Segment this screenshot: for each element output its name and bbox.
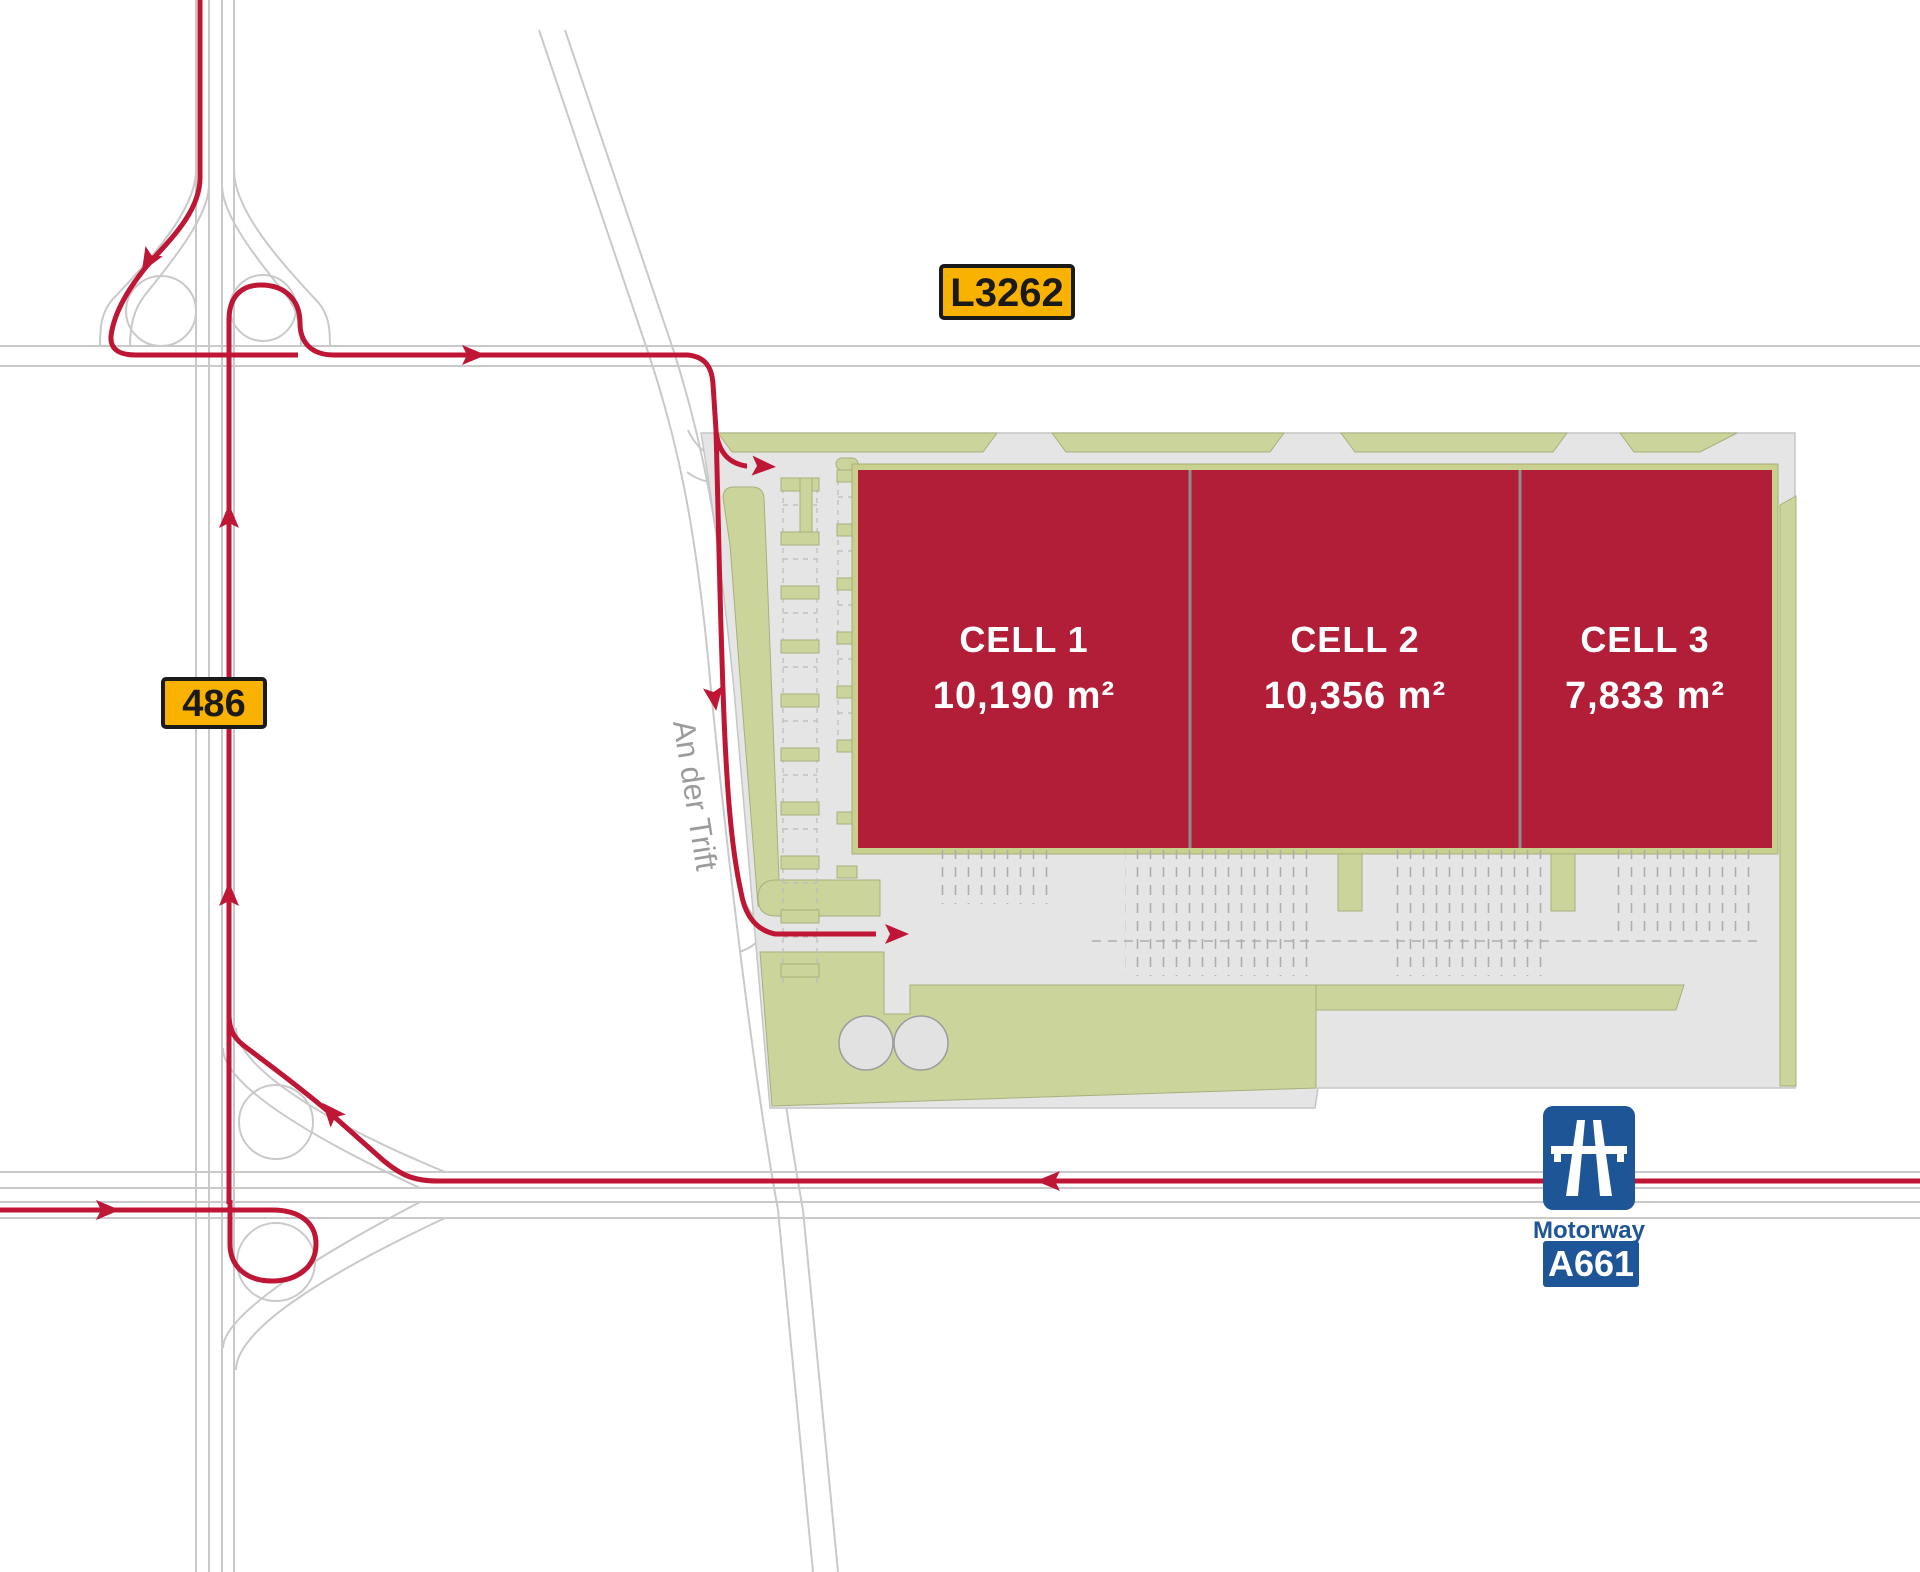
green-band-2 bbox=[1052, 433, 1284, 452]
green-right-strip bbox=[1780, 496, 1796, 1086]
interchange-south bbox=[223, 1028, 445, 1370]
cell-3-area: 7,833 m² bbox=[1565, 675, 1725, 717]
motorway-type-label: Motorway bbox=[1533, 1217, 1646, 1244]
badge-l3262-text: L3262 bbox=[950, 271, 1063, 315]
cell-2-name: CELL 2 bbox=[1290, 619, 1419, 660]
green-tab-2 bbox=[1551, 847, 1575, 911]
badge-a661-text: A661 bbox=[1548, 1243, 1634, 1284]
route-a661-east-loop bbox=[0, 1200, 316, 1281]
motorway-sign: Motorway A661 bbox=[1533, 1106, 1646, 1287]
cell-3-name: CELL 3 bbox=[1580, 619, 1709, 660]
green-band-3 bbox=[1341, 433, 1567, 452]
badge-486-text: 486 bbox=[182, 683, 245, 725]
badge-486: 486 bbox=[163, 679, 265, 727]
interchange-north bbox=[100, 170, 330, 346]
badge-l3262: L3262 bbox=[941, 266, 1073, 318]
route-486-south-exit bbox=[111, 0, 298, 355]
green-band-1 bbox=[718, 433, 997, 452]
site-access-map: CELL 1 10,190 m² CELL 2 10,356 m² CELL 3… bbox=[0, 0, 1920, 1572]
green-tab-1 bbox=[1338, 847, 1362, 911]
cell-1-name: CELL 1 bbox=[959, 619, 1088, 660]
tank-circle-1 bbox=[839, 1016, 893, 1070]
cell-1-area: 10,190 m² bbox=[933, 675, 1115, 717]
green-south-strip bbox=[1316, 985, 1684, 1010]
warehouse-building: CELL 1 10,190 m² CELL 2 10,356 m² CELL 3… bbox=[852, 464, 1778, 854]
tank-circle-2 bbox=[894, 1016, 948, 1070]
cell-2-area: 10,356 m² bbox=[1264, 675, 1446, 717]
badge-a661: A661 bbox=[1543, 1241, 1639, 1287]
